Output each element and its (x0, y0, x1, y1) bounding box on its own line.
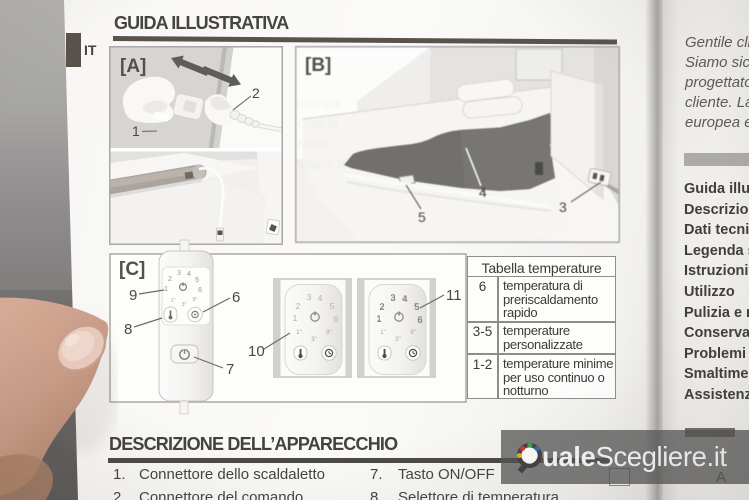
svg-text:1: 1 (164, 284, 168, 293)
svg-text:11: 11 (446, 287, 462, 304)
svg-text:5: 5 (195, 275, 199, 284)
svg-text:2: 2 (168, 274, 172, 283)
svg-text:lnstrucc: lnstrucc (297, 96, 342, 111)
svg-text:3: 3 (559, 199, 567, 215)
svg-text:7: 7 (226, 361, 234, 378)
svg-text:2: 2 (252, 85, 260, 101)
svg-text:1: 1 (376, 314, 381, 325)
svg-text:4: 4 (402, 294, 407, 305)
svg-text:[B]: [B] (305, 55, 331, 76)
svg-text:1: 1 (132, 123, 140, 139)
svg-text:3ʺ: 3ʺ (181, 301, 186, 308)
svg-text:8: 8 (124, 321, 132, 338)
svg-text:9ʺ: 9ʺ (192, 296, 197, 303)
svg-text:5: 5 (414, 302, 419, 313)
svg-text:[C]: [C] (119, 259, 145, 280)
svg-text:2: 2 (379, 302, 384, 313)
svg-text:6: 6 (417, 315, 422, 326)
svg-text:3: 3 (177, 268, 181, 277)
svg-text:Com le: Com le (297, 116, 338, 131)
svg-text:3: 3 (390, 293, 395, 304)
svg-text:1ʺ: 1ʺ (170, 297, 175, 304)
svg-text:Mayor fe: Mayor fe (297, 156, 348, 171)
svg-text:4: 4 (479, 184, 487, 200)
svg-text:9: 9 (129, 287, 137, 304)
svg-text:[A]: [A] (120, 56, 146, 77)
svg-text:6: 6 (198, 285, 202, 294)
svg-text:6: 6 (232, 289, 240, 306)
svg-text:4: 4 (187, 269, 191, 278)
svg-text:10: 10 (248, 343, 265, 360)
svg-text:5: 5 (418, 209, 426, 225)
svg-text:Neve: Neve (297, 136, 327, 151)
